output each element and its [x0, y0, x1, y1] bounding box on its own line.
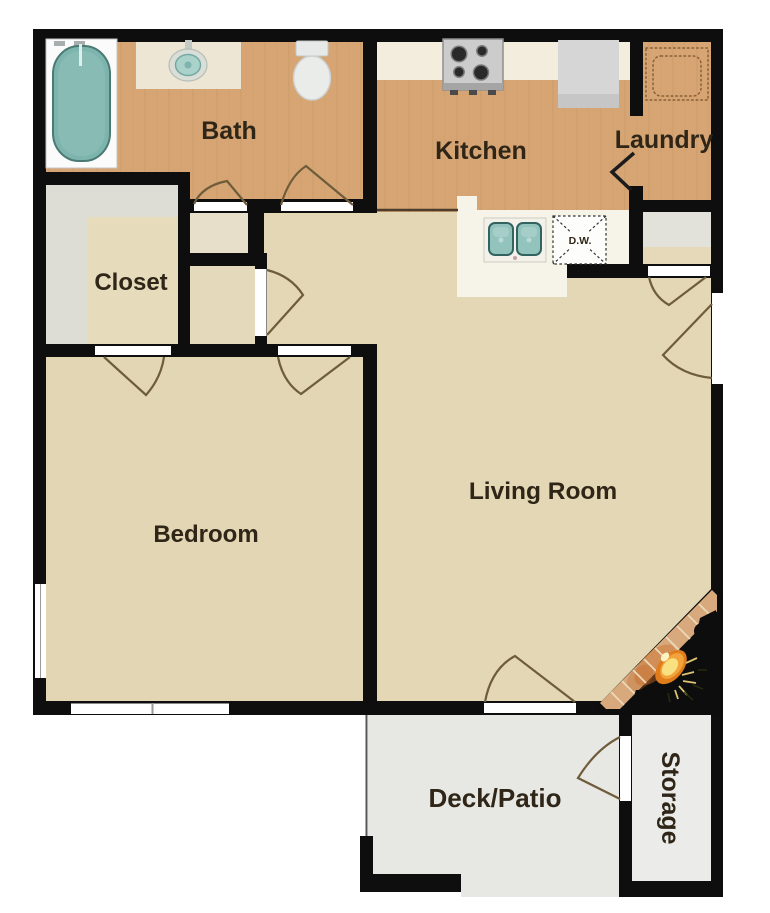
- svg-text:Laundry: Laundry: [615, 126, 714, 154]
- svg-text:Living Room: Living Room: [469, 478, 617, 505]
- svg-text:Bath: Bath: [201, 117, 257, 145]
- svg-text:Kitchen: Kitchen: [435, 137, 527, 165]
- svg-text:Bedroom: Bedroom: [153, 521, 258, 548]
- svg-text:Deck/Patio: Deck/Patio: [429, 783, 562, 813]
- svg-text:D.W.: D.W.: [569, 235, 592, 247]
- svg-text:Storage: Storage: [656, 751, 684, 844]
- svg-text:Closet: Closet: [94, 269, 167, 296]
